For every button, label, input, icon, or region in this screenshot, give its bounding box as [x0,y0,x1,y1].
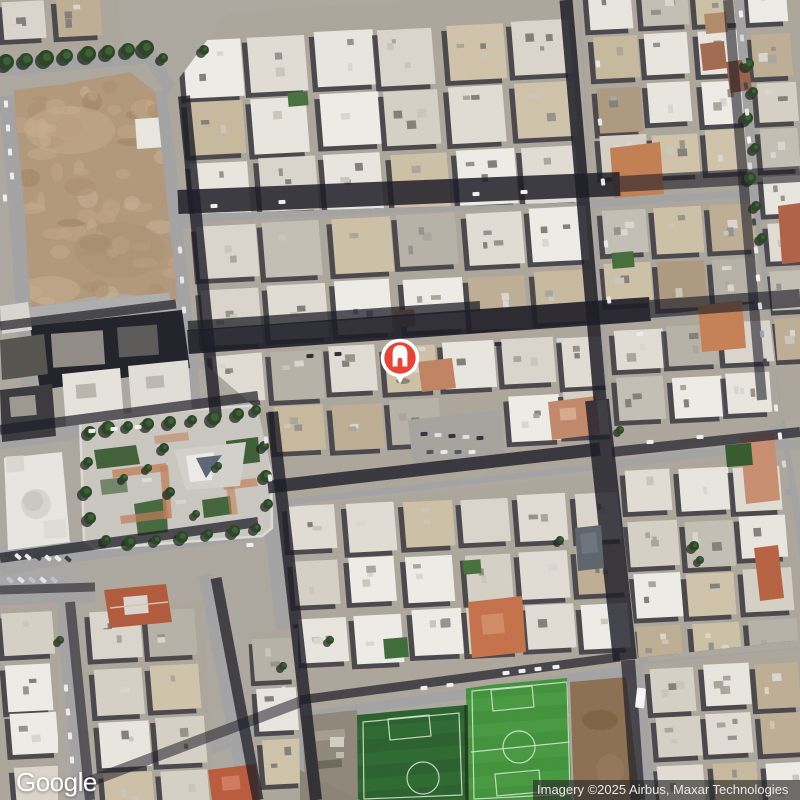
svg-text:Imagery ©2025 Airbus, Maxar Te: Imagery ©2025 Airbus, Maxar Technologies [537,782,789,797]
svg-text:Google: Google [16,767,97,797]
